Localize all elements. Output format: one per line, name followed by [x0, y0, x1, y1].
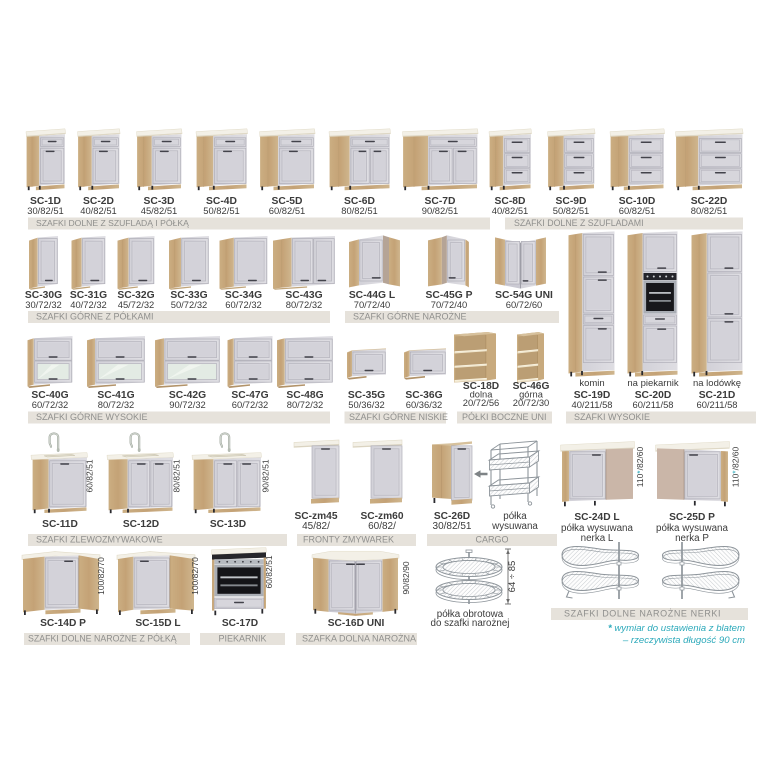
svg-text:80/82/51: 80/82/51 — [341, 205, 378, 216]
svg-text:50/36/32: 50/36/32 — [348, 399, 385, 410]
svg-text:60/72/32: 60/72/32 — [232, 399, 269, 410]
svg-text:SC-25D P: SC-25D P — [669, 512, 715, 523]
svg-text:SZAFKI GÓRNE WYSOKIE: SZAFKI GÓRNE WYSOKIE — [36, 412, 148, 422]
svg-text:– rzeczywista długość 90 cm: – rzeczywista długość 90 cm — [622, 635, 745, 646]
svg-text:110*/82/60: 110*/82/60 — [731, 446, 741, 487]
svg-text:60/82/51: 60/82/51 — [264, 555, 274, 588]
svg-text:20/72/56: 20/72/56 — [463, 397, 500, 408]
svg-text:SZAFKI GÓRNE NAROŻNE: SZAFKI GÓRNE NAROŻNE — [353, 312, 467, 322]
svg-text:60/72/32: 60/72/32 — [32, 399, 69, 410]
svg-text:komin: komin — [579, 378, 604, 389]
svg-text:100/82/70: 100/82/70 — [190, 557, 200, 595]
svg-text:50/72/32: 50/72/32 — [171, 299, 208, 310]
svg-text:na lodówkę: na lodówkę — [693, 378, 741, 389]
svg-text:40/82/51: 40/82/51 — [80, 205, 117, 216]
svg-text:SZAFKI DOLNE Z SZUFLADĄ I PÓŁK: SZAFKI DOLNE Z SZUFLADĄ I PÓŁKĄ — [36, 218, 189, 228]
svg-text:60/36/32: 60/36/32 — [406, 399, 443, 410]
svg-text:SZAFKI GÓRNE NISKIE: SZAFKI GÓRNE NISKIE — [349, 412, 448, 422]
svg-text:* wymiar do ustawienia z blate: * wymiar do ustawienia z blatem — [608, 623, 745, 634]
svg-text:45/82/: 45/82/ — [302, 521, 330, 532]
svg-text:80/82/51: 80/82/51 — [691, 205, 728, 216]
svg-text:do szafki narożnej: do szafki narożnej — [431, 618, 510, 629]
svg-text:60/211/58: 60/211/58 — [696, 399, 737, 410]
svg-text:60/72/32: 60/72/32 — [225, 299, 262, 310]
svg-text:SC-14D P: SC-14D P — [40, 618, 86, 629]
svg-text:90/72/32: 90/72/32 — [169, 399, 206, 410]
svg-text:40/82/51: 40/82/51 — [492, 205, 529, 216]
svg-text:30/82/51: 30/82/51 — [433, 521, 472, 532]
svg-text:80/72/32: 80/72/32 — [98, 399, 135, 410]
svg-text:SC-16D UNI: SC-16D UNI — [328, 618, 385, 629]
svg-text:na piekarnik: na piekarnik — [627, 378, 678, 389]
svg-text:PIEKARNIK: PIEKARNIK — [218, 634, 266, 644]
svg-text:90/82/51: 90/82/51 — [261, 459, 271, 492]
svg-text:70/72/40: 70/72/40 — [431, 299, 468, 310]
svg-text:SC-12D: SC-12D — [123, 519, 159, 530]
svg-text:SC-13D: SC-13D — [210, 519, 246, 530]
svg-text:45/82/51: 45/82/51 — [141, 205, 178, 216]
svg-text:60/82/51: 60/82/51 — [85, 459, 95, 492]
svg-text:50/82/51: 50/82/51 — [553, 205, 590, 216]
svg-text:SZAFKA DOLNA NAROŻNA: SZAFKA DOLNA NAROŻNA — [302, 634, 416, 644]
svg-text:40/72/32: 40/72/32 — [70, 299, 107, 310]
svg-text:60/82/: 60/82/ — [368, 521, 396, 532]
svg-text:SZAFKI WYSOKIE: SZAFKI WYSOKIE — [574, 412, 650, 422]
svg-text:SC-11D: SC-11D — [42, 519, 78, 530]
svg-text:SC-17D: SC-17D — [222, 618, 258, 629]
svg-text:30/72/32: 30/72/32 — [25, 299, 62, 310]
svg-text:45/72/32: 45/72/32 — [118, 299, 155, 310]
svg-text:20/72/30: 20/72/30 — [513, 397, 550, 408]
svg-text:40/211/58: 40/211/58 — [571, 399, 612, 410]
svg-text:SC-24D L: SC-24D L — [574, 512, 619, 523]
svg-text:60/72/60: 60/72/60 — [506, 299, 543, 310]
svg-text:SZAFKI DOLNE Z SZUFLADAMI: SZAFKI DOLNE Z SZUFLADAMI — [514, 218, 644, 228]
svg-text:70/72/40: 70/72/40 — [354, 299, 391, 310]
svg-text:FRONTY ZMYWAREK: FRONTY ZMYWAREK — [303, 535, 394, 545]
svg-text:64 ÷ 85: 64 ÷ 85 — [507, 561, 518, 593]
svg-text:CARGO: CARGO — [475, 535, 508, 545]
svg-text:nerka L: nerka L — [581, 533, 614, 544]
svg-text:110*/82/60: 110*/82/60 — [635, 446, 645, 487]
svg-text:SC-15D L: SC-15D L — [135, 618, 180, 629]
svg-text:SZAFKI GÓRNE Z PÓŁKAMI: SZAFKI GÓRNE Z PÓŁKAMI — [36, 312, 154, 322]
svg-text:SZAFKI DOLNE NAROŻNE NERKI: SZAFKI DOLNE NAROŻNE NERKI — [564, 609, 721, 619]
svg-text:nerka P: nerka P — [675, 533, 709, 544]
svg-text:100/82/70: 100/82/70 — [96, 557, 106, 595]
svg-text:90/82/90: 90/82/90 — [401, 561, 411, 594]
svg-text:80/82/51: 80/82/51 — [172, 459, 182, 492]
svg-text:90/82/51: 90/82/51 — [422, 205, 459, 216]
svg-text:80/72/32: 80/72/32 — [287, 399, 324, 410]
svg-text:60/82/51: 60/82/51 — [269, 205, 306, 216]
svg-text:SZAFKI DOLNE NAROŻNE Z PÓŁKĄ: SZAFKI DOLNE NAROŻNE Z PÓŁKĄ — [28, 634, 177, 644]
svg-text:PÓŁKI BOCZNE UNI: PÓŁKI BOCZNE UNI — [462, 412, 547, 422]
svg-text:SZAFKI ZLEWOZMYWAKOWE: SZAFKI ZLEWOZMYWAKOWE — [36, 535, 163, 545]
svg-text:30/82/51: 30/82/51 — [27, 205, 64, 216]
svg-text:60/82/51: 60/82/51 — [619, 205, 656, 216]
svg-text:60/211/58: 60/211/58 — [632, 399, 673, 410]
svg-text:80/72/32: 80/72/32 — [286, 299, 323, 310]
svg-text:wysuwana: wysuwana — [491, 521, 538, 532]
svg-text:50/82/51: 50/82/51 — [203, 205, 240, 216]
